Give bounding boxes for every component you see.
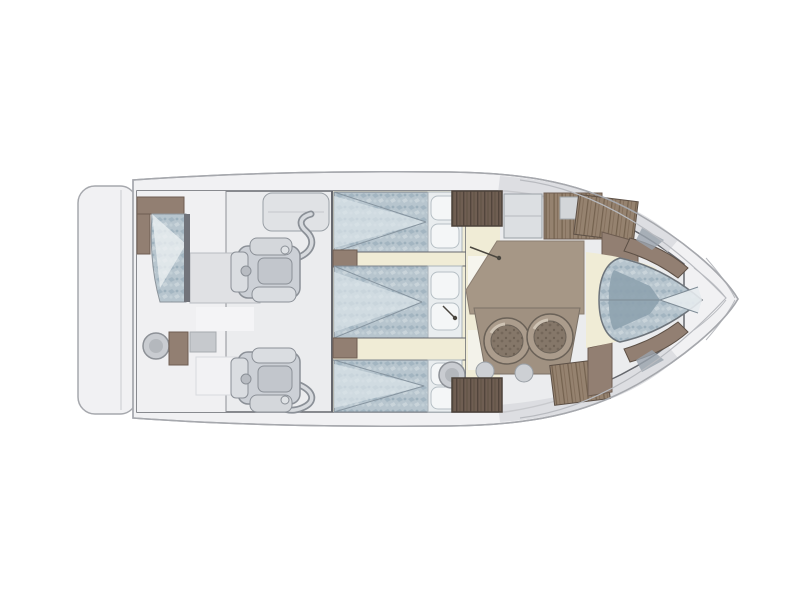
dinette-seat-left (484, 318, 530, 364)
berth-middle-pillow-1 (431, 272, 459, 299)
aft-cabinet-low (169, 332, 188, 365)
yacht-floorplan-diagram (0, 0, 800, 600)
swim-platform (78, 186, 137, 414)
berth-aft (334, 192, 462, 252)
aft-hatch-small (190, 332, 216, 352)
yacht-floorplan-canvas (0, 0, 800, 600)
aft-cabinet-side (137, 214, 150, 254)
berth-aft-pillow-2 (431, 224, 459, 248)
aft-locker-1 (196, 307, 254, 331)
cabinet-vberth-side (588, 342, 612, 396)
door-threshold-2 (333, 338, 357, 358)
engine-port (231, 238, 300, 302)
dinette-seat-right (527, 314, 573, 360)
cabinet-dark-bottom (452, 378, 502, 412)
aft-seat-back (184, 214, 190, 302)
door-swing-1-knob (497, 256, 501, 260)
berth-middle (334, 266, 462, 338)
aft-cabinet-top (137, 197, 184, 214)
dinette-footrest-2 (515, 364, 533, 382)
door-swing-2-knob (453, 316, 457, 320)
galley-cabinet-dark (452, 191, 502, 226)
aft-stool-top (149, 339, 163, 353)
door-threshold-1 (333, 250, 357, 267)
engine-starboard (231, 348, 300, 412)
